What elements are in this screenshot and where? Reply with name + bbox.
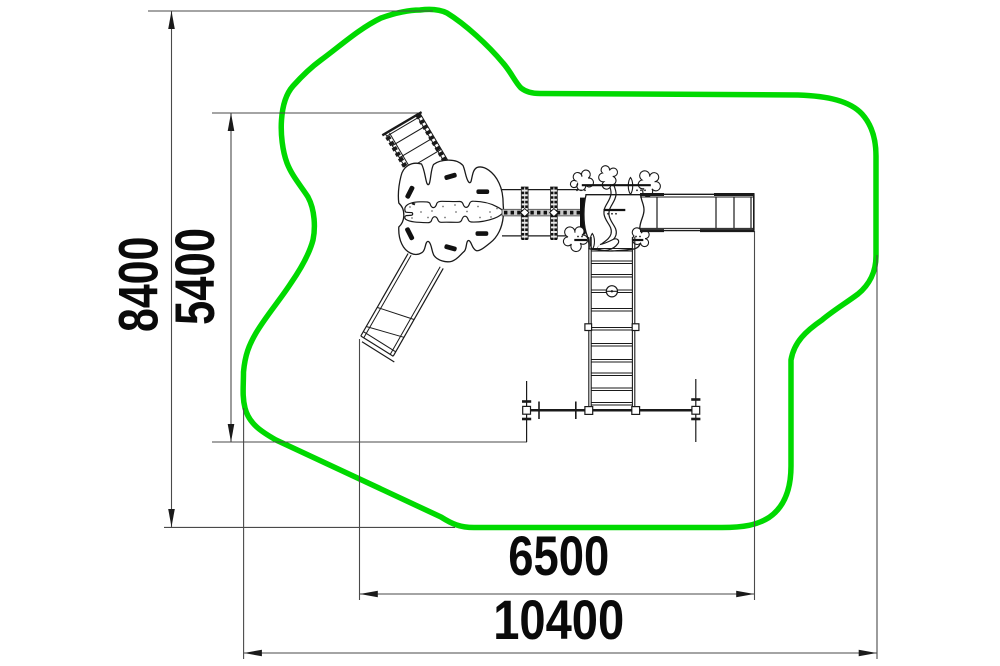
svg-text:5400: 5400 — [163, 228, 226, 325]
svg-text:6500: 6500 — [508, 524, 609, 587]
svg-text:10400: 10400 — [493, 588, 624, 651]
svg-text:8400: 8400 — [107, 237, 170, 332]
